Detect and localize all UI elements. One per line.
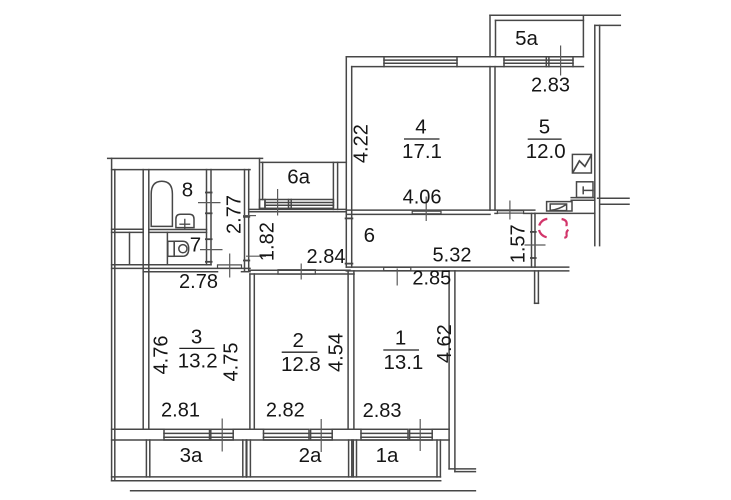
svg-text:1.57: 1.57 [507, 224, 529, 263]
svg-text:4.54: 4.54 [326, 333, 348, 372]
svg-text:2a: 2a [299, 444, 322, 467]
svg-text:1.82: 1.82 [257, 222, 279, 261]
svg-text:2.84: 2.84 [307, 246, 346, 268]
svg-text:1: 1 [395, 327, 406, 350]
svg-text:2.78: 2.78 [179, 271, 218, 293]
svg-text:2.85: 2.85 [412, 267, 451, 289]
svg-text:8: 8 [182, 178, 193, 201]
svg-text:4: 4 [415, 116, 426, 139]
svg-text:4.06: 4.06 [403, 187, 442, 209]
svg-text:13.1: 13.1 [383, 351, 423, 374]
svg-text:2.81: 2.81 [161, 400, 200, 422]
svg-text:4.62: 4.62 [434, 324, 456, 363]
svg-text:2.83: 2.83 [531, 75, 570, 97]
svg-text:1a: 1a [376, 444, 399, 467]
svg-text:12.0: 12.0 [526, 140, 566, 163]
svg-text:6: 6 [364, 224, 375, 247]
svg-text:13.2: 13.2 [178, 349, 218, 372]
svg-text:5a: 5a [515, 27, 538, 50]
svg-text:2: 2 [292, 329, 303, 352]
svg-text:4.76: 4.76 [151, 336, 173, 375]
svg-text:12.8: 12.8 [281, 353, 321, 376]
svg-text:3: 3 [191, 325, 202, 348]
svg-text:4.75: 4.75 [221, 343, 243, 382]
svg-text:2.77: 2.77 [224, 195, 246, 234]
svg-text:2.83: 2.83 [363, 400, 402, 422]
svg-text:2.82: 2.82 [266, 400, 305, 422]
svg-text:7: 7 [190, 234, 201, 257]
svg-text:6a: 6a [287, 166, 310, 189]
svg-text:17.1: 17.1 [402, 140, 442, 163]
svg-text:4.22: 4.22 [350, 124, 372, 163]
svg-text:3a: 3a [180, 444, 203, 467]
svg-text:5: 5 [539, 115, 550, 138]
svg-text:5.32: 5.32 [433, 244, 472, 266]
